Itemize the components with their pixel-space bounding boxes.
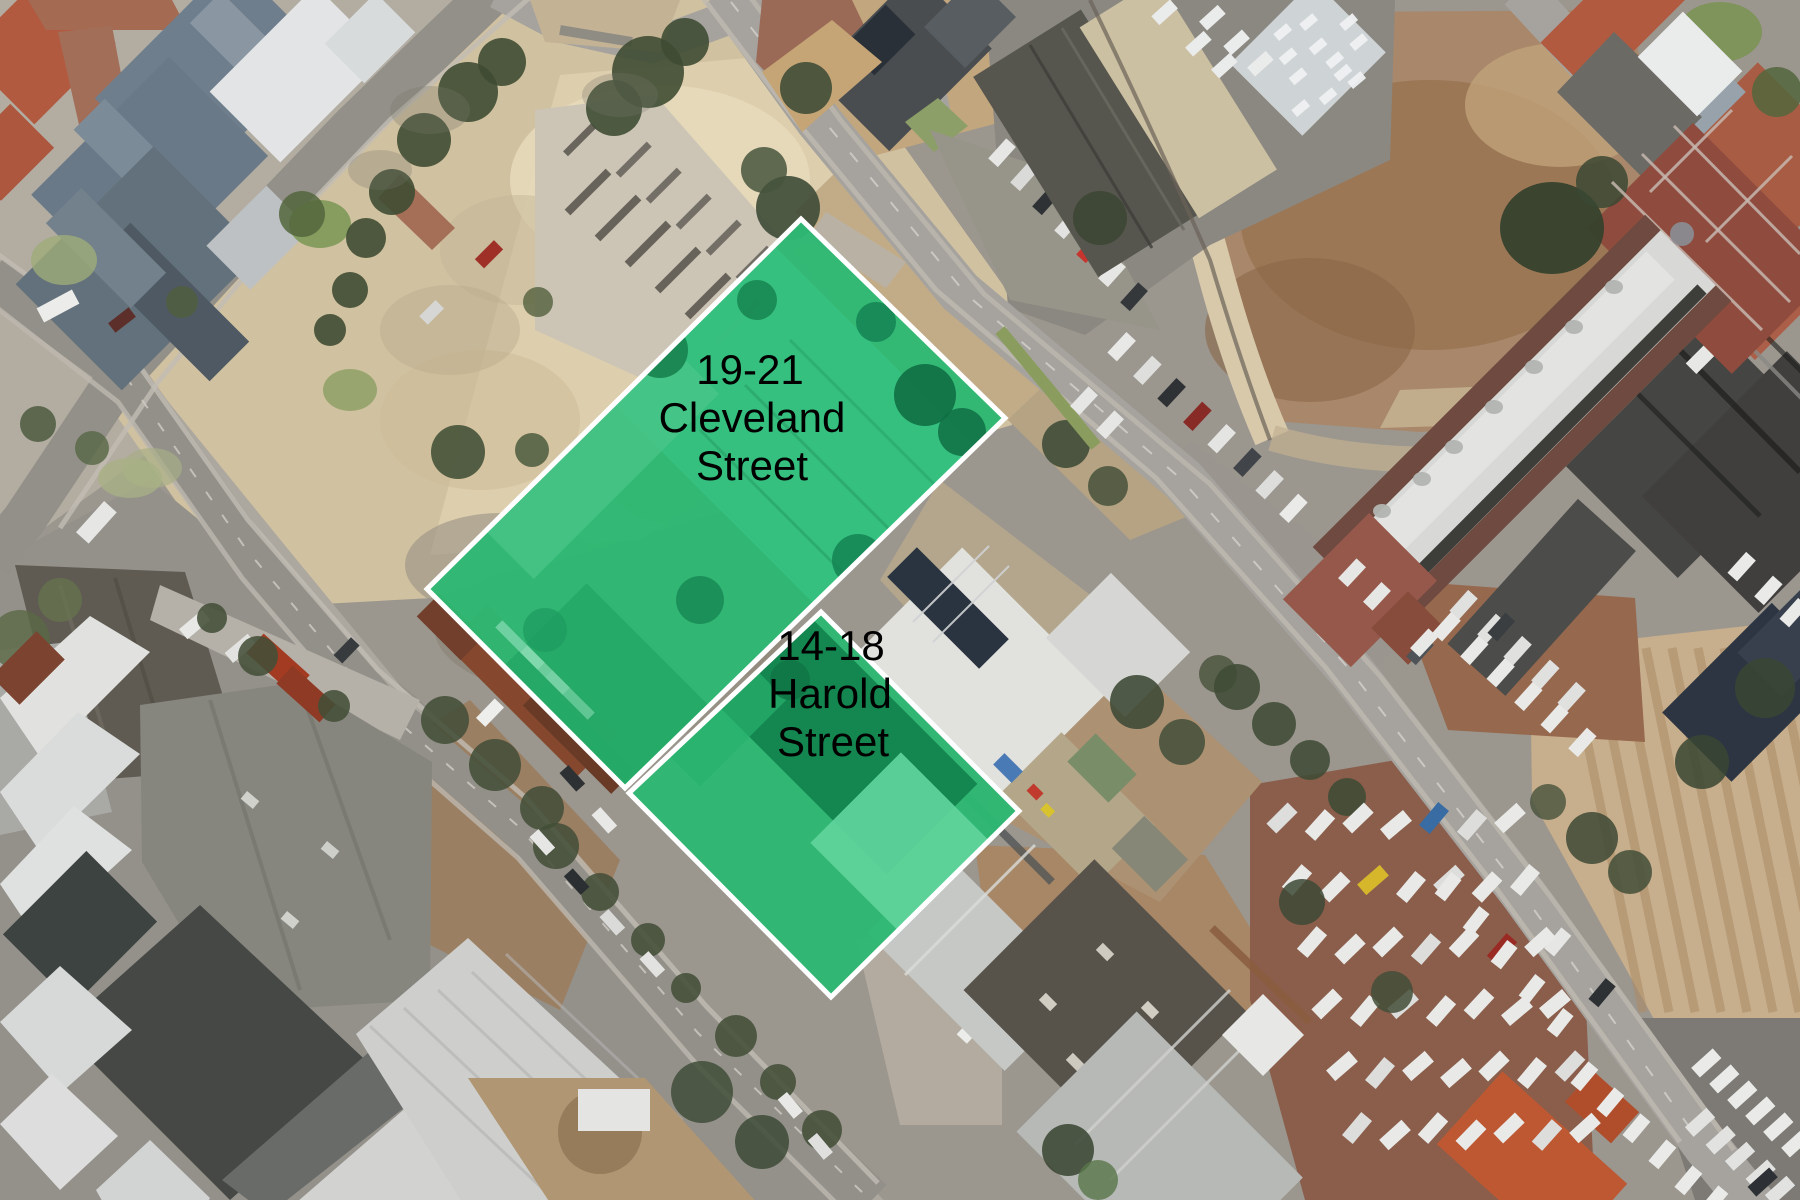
svg-text:14-18: 14-18 (777, 622, 884, 669)
svg-text:Harold: Harold (768, 670, 892, 717)
svg-text:Street: Street (777, 718, 889, 765)
svg-text:19-21: 19-21 (696, 346, 803, 393)
svg-text:Cleveland: Cleveland (659, 394, 846, 441)
svg-text:Street: Street (696, 442, 808, 489)
